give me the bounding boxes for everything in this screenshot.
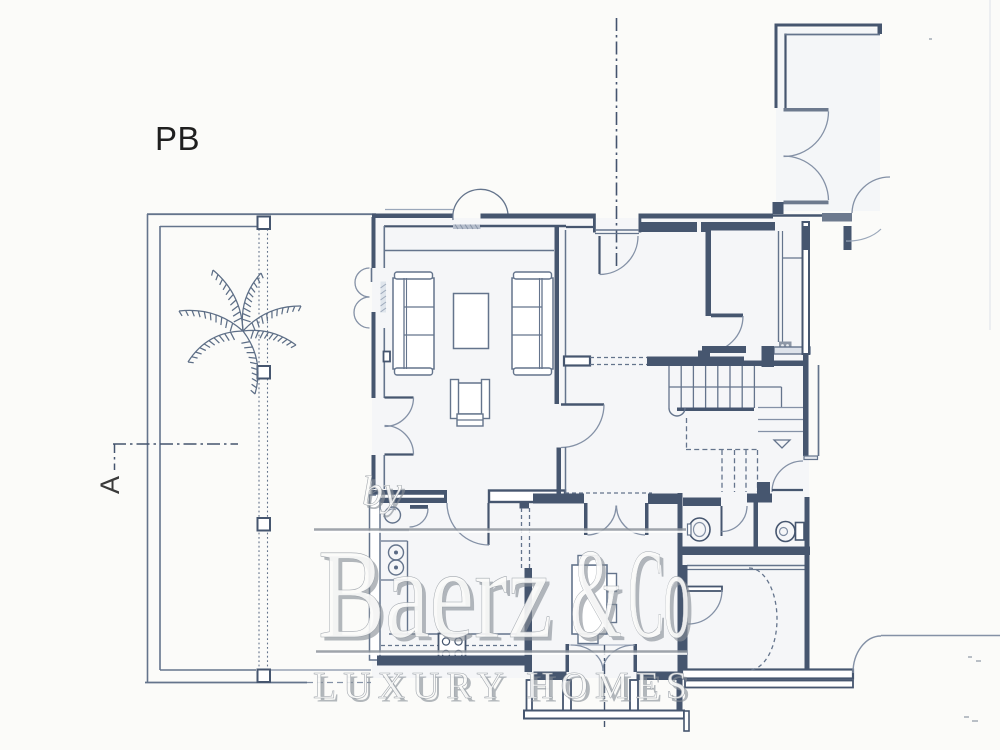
- svg-text:Co: Co: [628, 523, 690, 665]
- svg-text:&: &: [570, 523, 622, 665]
- svg-text:PB: PB: [155, 120, 200, 157]
- svg-text:A: A: [95, 476, 125, 494]
- svg-text:by: by: [362, 469, 402, 515]
- svg-text:Baerz: Baerz: [318, 523, 552, 665]
